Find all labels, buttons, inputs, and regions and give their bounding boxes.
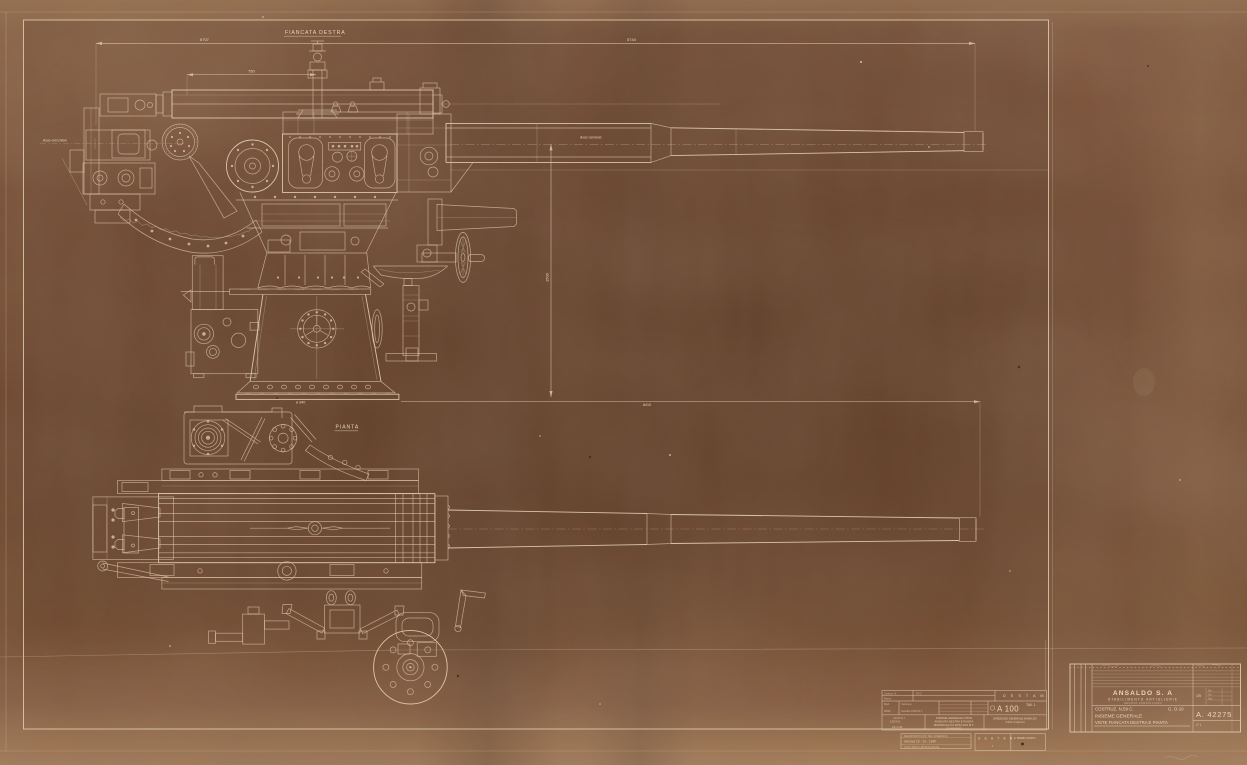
svg-text:COSTRUZ. N.59 C.: COSTRUZ. N.59 C. [1095,707,1134,712]
svg-text:INSIEME GENERALE: INSIEME GENERALE [1095,714,1142,720]
svg-text:FIANCATA DESTRA: FIANCATA DESTRA [285,30,346,36]
svg-text:Asse orecchioni: Asse orecchioni [42,139,67,143]
svg-text:PIANTA: PIANTA [336,425,360,431]
svg-text:1500: 1500 [545,272,550,282]
svg-text:ANSALDO S. A: ANSALDO S. A [1113,690,1173,697]
svg-text:DIREZIONE GENERALE ANSALDO: DIREZIONE GENERALE ANSALDO [993,717,1036,721]
svg-text:A 100: A 100 [997,705,1019,714]
svg-text:1/5: 1/5 [1196,694,1201,698]
svg-text:5744: 5744 [627,37,637,42]
svg-text:6707: 6707 [200,37,210,42]
svg-text:(CANNONE): (CANNONE) [946,726,962,730]
svg-text:Mod.: Mod. [884,702,890,706]
svg-text:4° 1: 4° 1 [1196,723,1202,727]
svg-text:TAV. 1: TAV. 1 [1026,703,1036,707]
svg-text:REGISTRATO UFF. TEC. DISEGNI N: REGISTRATO UFF. TEC. DISEGNI N. [904,734,948,738]
svg-text:Asse cannone: Asse cannone [579,136,602,140]
svg-text:Costruz. N.: Costruz. N. [884,691,897,695]
svg-text:Genova 23 - 10 - 1940: Genova 23 - 10 - 1940 [904,740,936,744]
svg-text:750: 750 [248,69,255,74]
svg-text:G. O-10: G. O-10 [1168,707,1184,712]
svg-text:A. 42275: A. 42275 [1196,710,1232,719]
svg-text:D E S T A M.: D E S T A M. [978,737,1017,741]
svg-text:F. PRIMO SANTO: F. PRIMO SANTO [1014,736,1036,740]
svg-text:Ver.: Ver. [1208,694,1212,697]
svg-text:ø 940: ø 940 [296,401,305,405]
svg-text:(Ufficio Artiglierie): (Ufficio Artiglierie) [1005,721,1025,724]
svg-text:App.: App. [1208,698,1213,701]
svg-text:Ansaldo 1939 M.T.: Ansaldo 1939 M.T. [901,709,923,713]
svg-text:8410: 8410 [643,403,651,407]
svg-text:59 C.: 59 C. [916,691,922,695]
svg-text:DISEGNI: DISEGNI [890,721,901,724]
svg-text:GENOVA CORNIGLIANO: GENOVA CORNIGLIANO [1124,702,1162,705]
svg-text:90/50: 90/50 [884,709,891,713]
svg-text:D E S T A M.: D E S T A M. [1003,694,1049,698]
svg-text:23-1-40: 23-1-40 [892,725,903,729]
svg-text:Dis.: Dis. [1208,690,1212,693]
svg-text:VISTE FIANCATA DESTRA E PIANTA: VISTE FIANCATA DESTRA E PIANTA [1095,720,1168,725]
svg-text:Cannone: Cannone [901,702,912,706]
svg-text:VISTO PER LA RIPRODUZIONE: VISTO PER LA RIPRODUZIONE [904,746,940,749]
svg-text:Pezzo: Pezzo [884,697,892,701]
